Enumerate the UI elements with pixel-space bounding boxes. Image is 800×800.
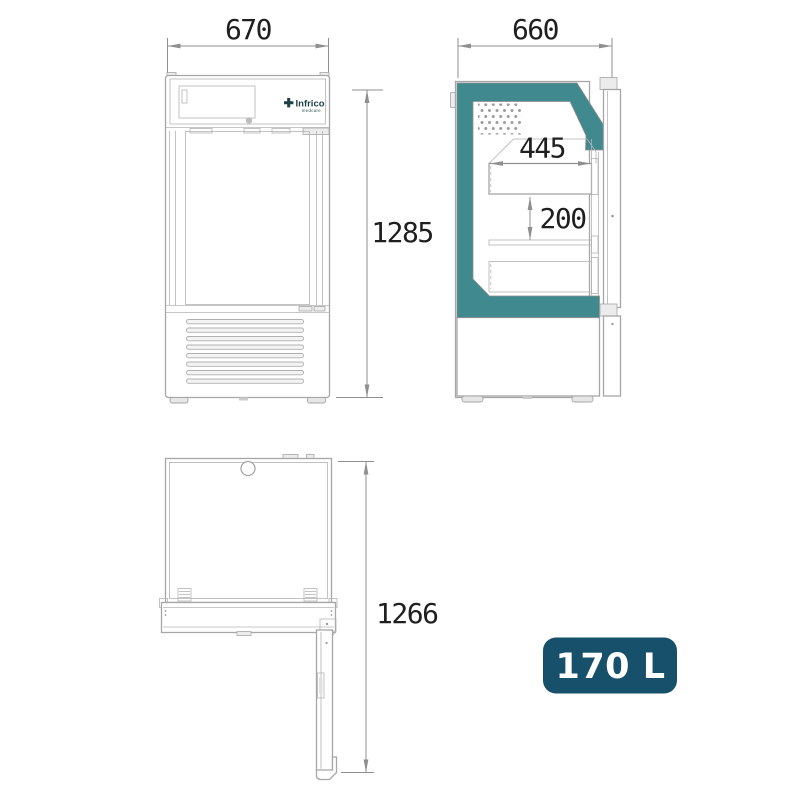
- top-hole: [241, 462, 255, 476]
- front-left-foot: [170, 398, 188, 404]
- front-right-foot: [308, 398, 326, 404]
- door-open: [317, 619, 337, 780]
- door-open-slab: [317, 630, 333, 771]
- side-left-foot: [462, 396, 483, 402]
- capacity-label: 170 L: [555, 647, 665, 687]
- dimension-depth-door-open: 1266: [338, 462, 438, 773]
- top-body: [166, 459, 332, 603]
- front-width-label: 670: [225, 13, 272, 46]
- top-view: 1266: [160, 455, 439, 780]
- front-band: [162, 603, 336, 633]
- door-slab: [604, 90, 621, 308]
- brand-tagline: medcare: [302, 108, 321, 113]
- machine-compartment: [457, 318, 600, 397]
- shelf-spacing-label: 200: [540, 202, 587, 235]
- dimension-front-width: 670: [168, 13, 329, 73]
- front-view: 670 Infrico medcare: [166, 13, 433, 403]
- door-mid-hinge: [600, 304, 617, 316]
- shelf-bracket: [592, 236, 599, 253]
- shelf-bracket: [592, 258, 599, 294]
- capacity-badge: 170 L: [543, 638, 677, 694]
- dimension-front-height: 1285: [336, 90, 433, 398]
- door-profile: [600, 78, 621, 397]
- door-top-hinge: [600, 78, 617, 90]
- front-height-label: 1285: [371, 216, 432, 249]
- side-depth-label: 660: [512, 13, 559, 46]
- interior-vent-holes: [478, 104, 522, 135]
- shelf-top: [489, 164, 592, 195]
- front-frame-band: [160, 599, 338, 636]
- shelf-width-label: 445: [519, 132, 565, 165]
- dimension-side-depth: 660: [458, 13, 612, 78]
- shelf-bracket: [592, 159, 599, 195]
- refrigerator-spec-diagram: 670 Infrico medcare: [0, 0, 800, 800]
- door-lock: [246, 117, 252, 123]
- side-view: 660 445 200: [451, 13, 621, 402]
- depth-door-open-label: 1266: [376, 597, 438, 630]
- side-lower-panel: [604, 316, 621, 396]
- technical-drawing-canvas: 670 Infrico medcare: [0, 0, 800, 800]
- side-right-foot: [572, 396, 593, 402]
